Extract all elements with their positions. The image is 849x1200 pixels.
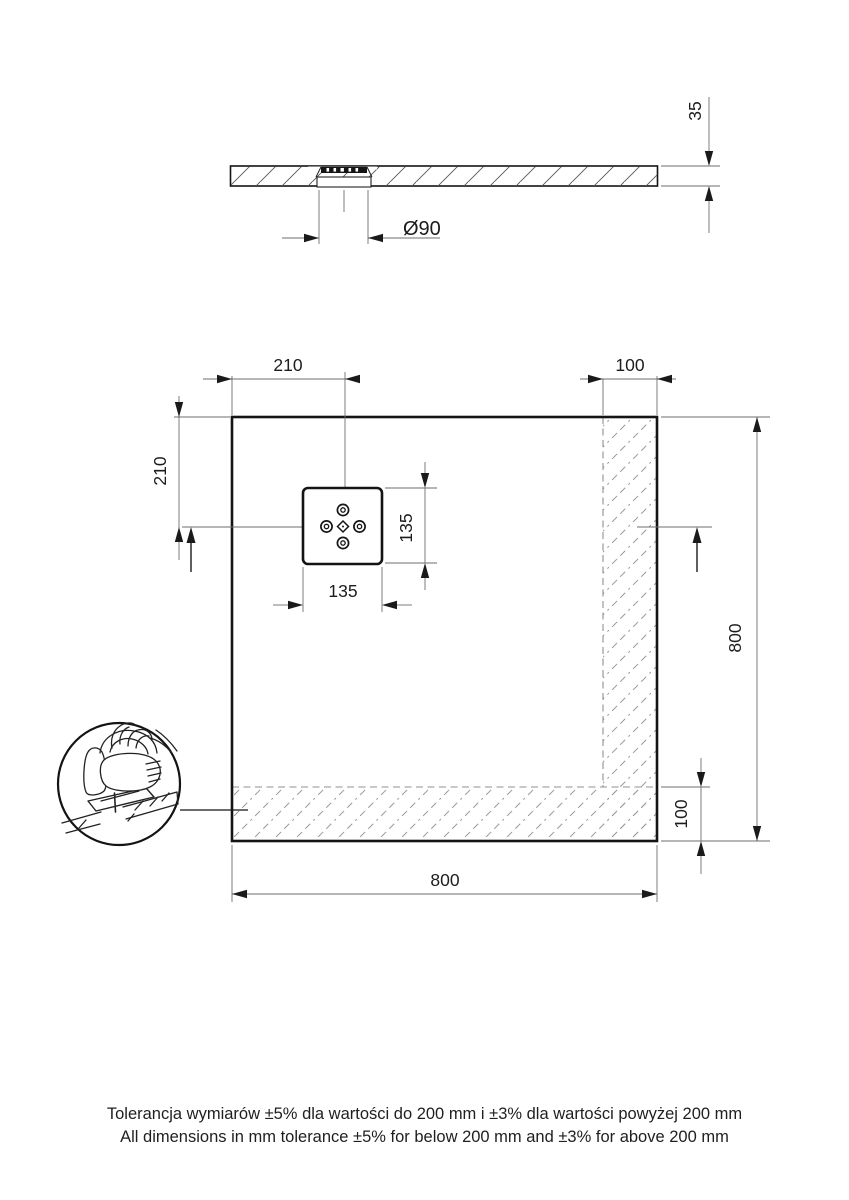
thickness-label: 35 (685, 101, 705, 120)
cut-band-right (603, 418, 656, 840)
dim-overall-height: 800 (661, 417, 770, 841)
drain-width-label: 135 (328, 581, 357, 601)
tolerance-note-pl: Tolerancja wymiarów ±5% dla wartości do … (0, 1103, 849, 1126)
dim-thickness: 35 (661, 97, 720, 233)
tolerance-note-en: All dimensions in mm tolerance ±5% for b… (0, 1126, 849, 1149)
drain-offset-y-label: 210 (150, 456, 170, 485)
drain-height-label: 135 (396, 513, 416, 542)
dim-drain-offset-y: 210 (150, 396, 230, 572)
dim-drain-width: 135 (273, 567, 412, 612)
dim-drain-diameter: Ø90 (282, 190, 441, 244)
dim-drain-height: 135 (385, 462, 437, 590)
drain-diameter-label: Ø90 (403, 218, 441, 240)
dim-edge-band-bottom: 100 (661, 758, 710, 874)
dim-overall-width: 800 (232, 845, 657, 902)
side-view: Ø90 35 (231, 97, 721, 244)
technical-drawing-page: Ø90 35 (0, 0, 849, 1200)
tray-outline (232, 417, 657, 841)
shower-tray-drawing: Ø90 35 (0, 0, 849, 1200)
cut-band-bottom (233, 787, 656, 840)
section-hatch (231, 167, 657, 187)
overall-height-label: 800 (725, 623, 745, 652)
dim-edge-band-top: 100 (580, 355, 676, 415)
overall-width-label: 800 (430, 870, 459, 890)
centerline-marker-right (693, 527, 702, 572)
edge-band-bottom-label: 100 (671, 799, 691, 828)
dim-drain-offset-x: 210 (203, 355, 360, 415)
plan-view: 210 100 210 (58, 355, 770, 902)
edge-band-top-label: 100 (615, 355, 644, 375)
tolerance-notes: Tolerancja wymiarów ±5% dla wartości do … (0, 1103, 849, 1149)
drain-offset-x-label: 210 (273, 355, 302, 375)
cutting-detail (58, 723, 248, 845)
